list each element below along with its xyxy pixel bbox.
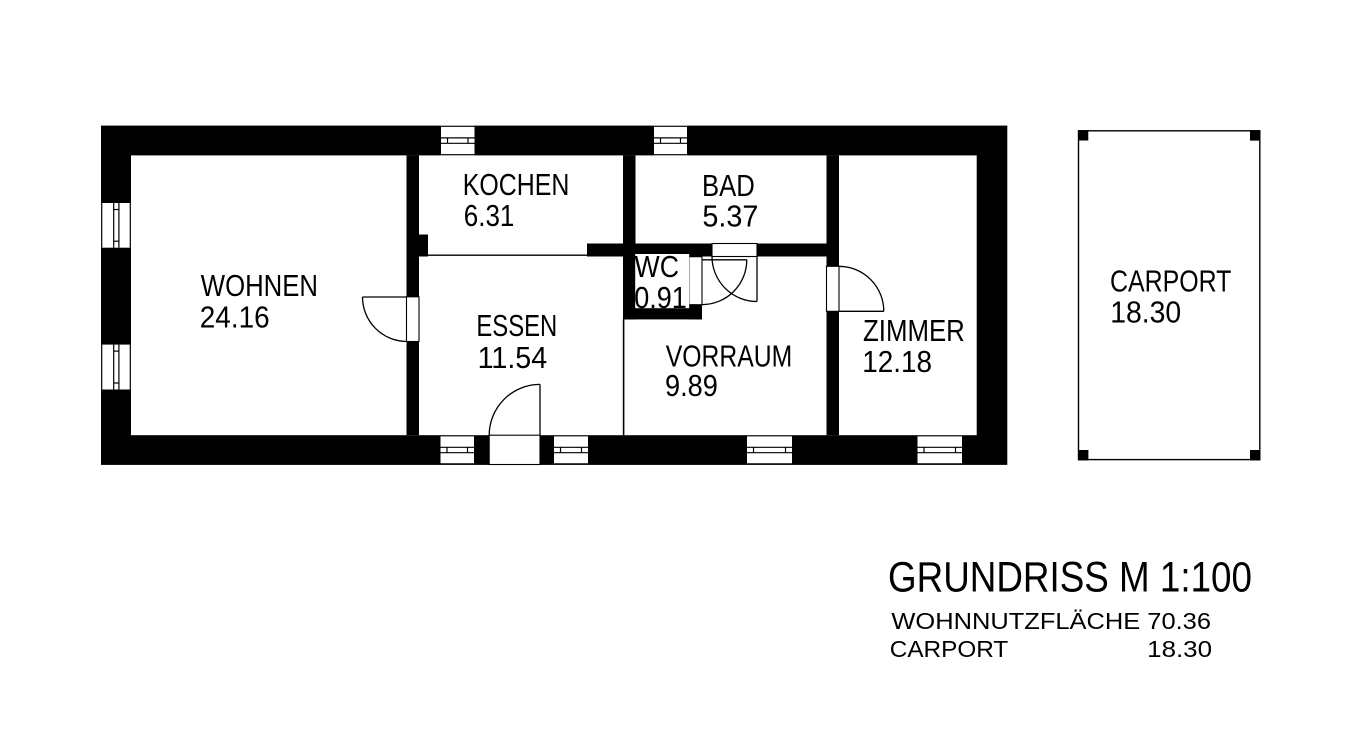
svg-text:WC: WC [635, 249, 680, 284]
svg-text:11.54: 11.54 [478, 340, 548, 375]
svg-text:ZIMMER: ZIMMER [863, 313, 965, 348]
svg-text:KOCHEN: KOCHEN [463, 167, 570, 202]
svg-text:GRUNDRISS M 1:100: GRUNDRISS M 1:100 [888, 555, 1252, 602]
svg-text:0.91: 0.91 [634, 280, 687, 315]
svg-text:ESSEN: ESSEN [476, 308, 557, 343]
svg-text:BAD: BAD [702, 168, 755, 203]
svg-text:18.30: 18.30 [1147, 636, 1212, 662]
svg-text:WOHNNUTZFLÄCHE 70.36: WOHNNUTZFLÄCHE 70.36 [891, 608, 1211, 634]
svg-text:18.30: 18.30 [1110, 294, 1181, 329]
svg-text:CARPORT: CARPORT [890, 636, 1008, 662]
svg-text:WOHNEN: WOHNEN [201, 268, 318, 303]
svg-text:12.18: 12.18 [862, 344, 932, 379]
svg-text:5.37: 5.37 [702, 199, 758, 234]
svg-text:CARPORT: CARPORT [1110, 263, 1231, 298]
svg-text:6.31: 6.31 [464, 198, 515, 233]
svg-text:9.89: 9.89 [665, 368, 718, 403]
svg-text:24.16: 24.16 [200, 300, 270, 335]
